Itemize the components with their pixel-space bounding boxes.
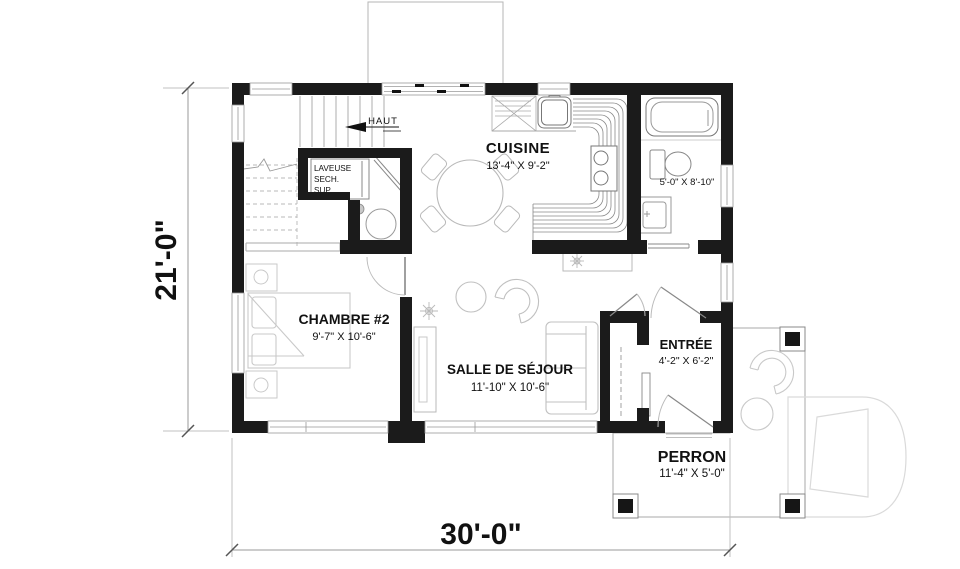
room-label-cuisine: CUISINE bbox=[486, 140, 550, 157]
porch-table bbox=[741, 398, 773, 430]
floor-plan-page: 21'-0" 30'-0" HAUT bbox=[0, 0, 960, 569]
stairs-up-label: HAUT bbox=[368, 116, 398, 127]
vanity-sink bbox=[638, 197, 671, 233]
room-label-perron: PERRON bbox=[658, 449, 726, 466]
room-dims-sejour: 11'-10" X 10'-6" bbox=[471, 382, 549, 394]
round-chair bbox=[456, 282, 486, 312]
laundry-label-2: SECH. bbox=[314, 175, 339, 184]
room-dims-cuisine: 13'-4" X 9'-2" bbox=[486, 160, 549, 172]
entrance-interior-door bbox=[651, 287, 706, 318]
drummond-watermark bbox=[788, 397, 906, 517]
room-dims-perron: 11'-4" X 5'-0" bbox=[659, 468, 724, 480]
room-label-entree: ENTRÉE bbox=[660, 337, 713, 352]
kitchen-sink bbox=[538, 96, 571, 129]
laundry-door-leaf bbox=[374, 158, 405, 192]
water-heater bbox=[366, 209, 396, 239]
room-label-chambre2: CHAMBRE #2 bbox=[298, 311, 389, 327]
dimension-height-label: 21'-0" bbox=[150, 219, 183, 300]
room-dims-entree: 4'-2" X 6'-2" bbox=[659, 355, 714, 367]
floor-plan-drawing: 21'-0" 30'-0" HAUT bbox=[0, 0, 960, 569]
patio-door bbox=[382, 83, 485, 95]
plant-icon bbox=[420, 302, 438, 320]
bathtub bbox=[646, 98, 718, 136]
wardrobe-halfwall bbox=[246, 243, 340, 251]
stove bbox=[591, 146, 617, 191]
plant-icon bbox=[570, 254, 584, 268]
corner-cabinet bbox=[492, 96, 536, 131]
accent-chair bbox=[495, 279, 539, 323]
deck-outline bbox=[368, 2, 503, 85]
bathroom-pocket-door bbox=[648, 244, 689, 248]
bedroom-door bbox=[367, 257, 405, 295]
room-dims-bathroom: 5'-0" X 8'-10" bbox=[660, 177, 715, 188]
dimension-width-label: 30'-0" bbox=[440, 518, 521, 551]
toilet bbox=[650, 150, 691, 179]
laundry-label-1: LAVEUSE bbox=[314, 164, 352, 173]
front-door bbox=[658, 395, 713, 427]
room-label-sejour: SALLE DE SÉJOUR bbox=[447, 362, 573, 377]
dresser bbox=[414, 327, 436, 412]
room-dims-chambre2: 9'-7" X 10'-6" bbox=[312, 331, 375, 343]
